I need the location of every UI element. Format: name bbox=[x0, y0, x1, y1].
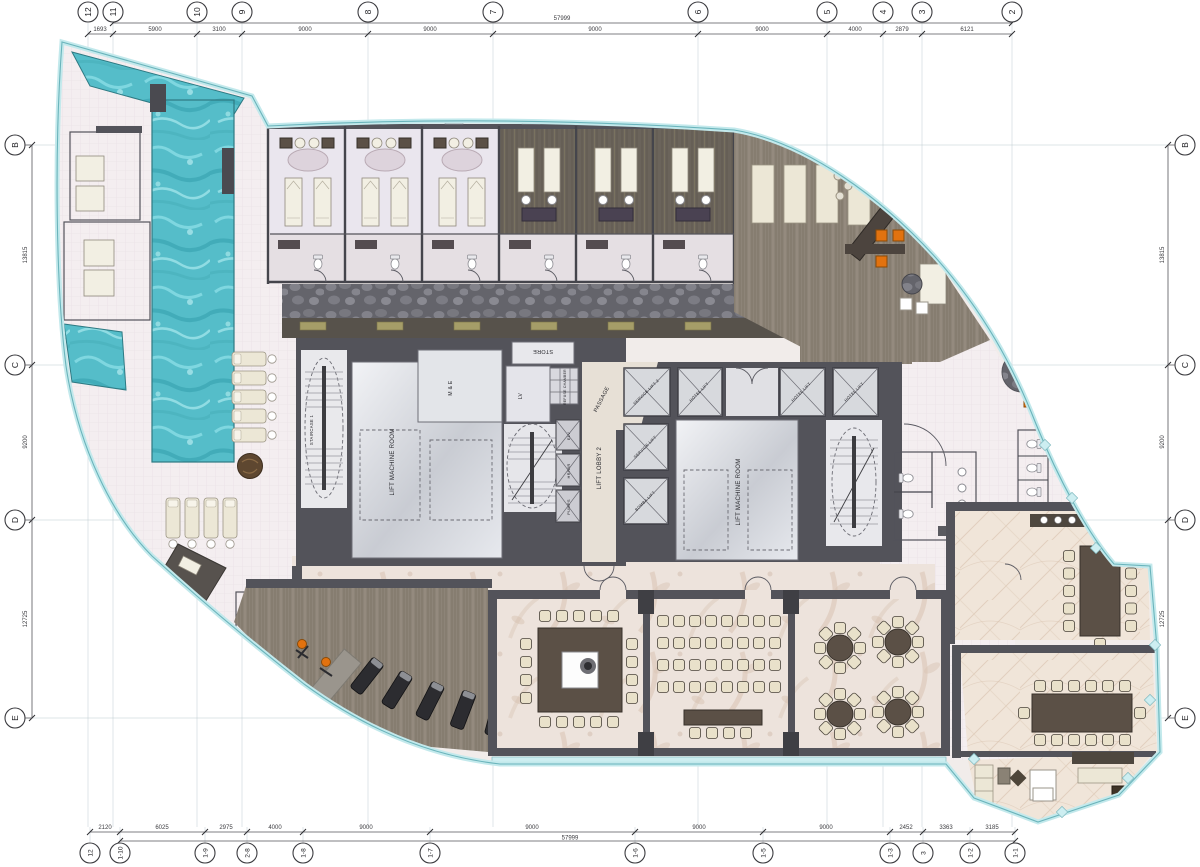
grid-bubble: B bbox=[10, 142, 20, 148]
label-lift-machine-room-1: LIFT MACHINE ROOM bbox=[390, 429, 396, 496]
dim-right: 13815 bbox=[1160, 246, 1166, 263]
dim-top: 4000 bbox=[848, 27, 862, 33]
dim-bottom: 2120 bbox=[98, 825, 112, 831]
floor-plan-canvas: STAIRCASE 1 LIFT MACHINE ROOM M & E STOR… bbox=[0, 0, 1200, 867]
pouf bbox=[1112, 803, 1125, 816]
grid-bubble: 9 bbox=[237, 9, 247, 14]
dim-top: 9000 bbox=[588, 27, 602, 33]
grid-bubble: B bbox=[1180, 142, 1190, 148]
grid-bubble: 7 bbox=[488, 9, 498, 14]
floor-plan-drawing: STAIRCASE 1 LIFT MACHINE ROOM M & E STOR… bbox=[0, 0, 1200, 867]
daybed bbox=[920, 264, 946, 304]
bench-band bbox=[282, 318, 804, 338]
grid-bubble: 10 bbox=[192, 7, 202, 17]
label-m-and-e: M & E bbox=[448, 380, 454, 395]
grid-bubble: 3 bbox=[917, 9, 927, 14]
label-lift-lobby-2: LIFT LOBBY 2 bbox=[597, 446, 603, 489]
dim-top: 6121 bbox=[960, 27, 974, 33]
planter-tree bbox=[238, 454, 263, 479]
grid-bubble: 8 bbox=[363, 9, 373, 14]
dim-right: 12725 bbox=[1160, 610, 1166, 627]
label-store: STORE bbox=[533, 348, 553, 354]
grid-bubble: E bbox=[1180, 715, 1190, 721]
grid-bubble: 1-7 bbox=[427, 848, 434, 858]
dim-bottom-overall: 57999 bbox=[562, 836, 579, 842]
grid-bubble: 4 bbox=[878, 9, 888, 14]
grid-bubble: 12 bbox=[87, 849, 94, 857]
dim-top: 2879 bbox=[895, 27, 909, 33]
dim-left: 12725 bbox=[23, 610, 29, 627]
grid-bubble: 2 bbox=[1007, 9, 1017, 14]
dim-top-overall: 57999 bbox=[554, 16, 571, 22]
dimensions-left: 13815 9200 12725 bbox=[23, 142, 35, 721]
grid-bubble: 3 bbox=[920, 851, 927, 855]
settee bbox=[1078, 768, 1122, 783]
orange-chair bbox=[893, 230, 904, 241]
dim-bottom: 9000 bbox=[692, 825, 706, 831]
lift-machine-room-1 bbox=[352, 350, 502, 558]
label-staircase-1: STAIRCASE 1 bbox=[309, 415, 314, 446]
label-hr-wr: HR/WR bbox=[566, 463, 571, 478]
grid-bubble: C bbox=[1180, 362, 1190, 368]
dim-bottom: 9000 bbox=[819, 825, 833, 831]
orange-chair bbox=[876, 230, 887, 241]
dimensions-right: 13815 9200 12725 bbox=[1160, 142, 1171, 721]
label-refuse-chamber: REFUSE CHAMBER bbox=[563, 369, 567, 405]
dim-top: 9000 bbox=[423, 27, 437, 33]
label-lift-machine-room-2: LIFT MACHINE ROOM bbox=[736, 459, 742, 526]
console bbox=[1072, 752, 1134, 764]
dim-left: 9200 bbox=[23, 435, 29, 449]
grid-bubble: D bbox=[10, 517, 20, 523]
relaxation-lounge bbox=[734, 130, 990, 362]
building: STAIRCASE 1 LIFT MACHINE ROOM M & E STOR… bbox=[0, 0, 1200, 867]
staircase-central bbox=[504, 424, 562, 512]
dim-bottom: 9000 bbox=[525, 825, 539, 831]
dimensions-bottom: 57999 2120 6025 2975 4000 9000 9000 9000… bbox=[87, 825, 1018, 844]
dim-top: 3100 bbox=[212, 27, 226, 33]
dim-bottom: 6025 bbox=[155, 825, 169, 831]
staircase-2 bbox=[826, 420, 882, 546]
spin-bike bbox=[322, 658, 331, 667]
grid-bubbles-left: B C D E bbox=[5, 135, 32, 728]
grid-bubbles-right: B C D E bbox=[1168, 135, 1195, 728]
grid-bubble: 1-9 bbox=[202, 848, 209, 858]
grid-bubble: 11 bbox=[108, 7, 118, 16]
grid-bubble: 1-8 bbox=[300, 848, 307, 858]
spa-treatment-rooms bbox=[268, 114, 734, 284]
dim-top: 5900 bbox=[148, 27, 162, 33]
staircase-1 bbox=[301, 350, 347, 508]
grid-bubble: C bbox=[10, 362, 20, 368]
grid-bubbles-bottom: 12 1-10 1-9 2-8 1-8 1-7 1-6 1-5 1-3 3 1-… bbox=[80, 843, 1025, 863]
dim-left: 13815 bbox=[23, 246, 29, 263]
orange-chair bbox=[876, 256, 887, 267]
grid-bubble: 6 bbox=[693, 9, 703, 14]
dim-right: 9200 bbox=[1160, 435, 1166, 449]
label-lv: LV bbox=[518, 392, 524, 399]
label-pumps: PUMPS bbox=[566, 499, 571, 515]
dim-top: 1693 bbox=[93, 27, 107, 33]
label-elv: ELV bbox=[566, 432, 571, 440]
boardroom-east-2 bbox=[952, 645, 1158, 758]
spin-bike bbox=[298, 640, 307, 649]
dim-bottom: 2452 bbox=[899, 825, 913, 831]
dim-bottom: 3363 bbox=[939, 825, 953, 831]
stone-walkway bbox=[282, 284, 804, 318]
grid-bubbles-top: 12 11 10 9 8 7 6 5 4 3 2 bbox=[78, 2, 1022, 22]
grid-bubble: 1-2 bbox=[967, 848, 974, 858]
grid-bubble: E bbox=[10, 715, 20, 721]
lv-room bbox=[506, 366, 550, 422]
grid-bubble: 1-1 bbox=[1012, 848, 1019, 858]
function-rooms bbox=[488, 577, 950, 763]
dim-bottom: 3185 bbox=[985, 825, 999, 831]
grid-bubble: 1-3 bbox=[887, 848, 894, 858]
dim-top: 9000 bbox=[755, 27, 769, 33]
grid-bubble: 1-5 bbox=[760, 848, 767, 858]
grid-bubble: 12 bbox=[83, 7, 93, 17]
grid-bubble: 5 bbox=[822, 9, 832, 14]
grid-bubble: 2-8 bbox=[244, 848, 251, 858]
dim-bottom: 9000 bbox=[359, 825, 373, 831]
boardroom-east-1 bbox=[946, 502, 1150, 650]
dim-bottom: 4000 bbox=[268, 825, 282, 831]
grid-bubble: 1-6 bbox=[632, 848, 639, 858]
dim-bottom: 2975 bbox=[219, 825, 233, 831]
boardroom-square bbox=[521, 611, 638, 728]
dim-top: 9000 bbox=[298, 27, 312, 33]
grid-bubble: 1-10 bbox=[117, 846, 124, 860]
grid-bubble: D bbox=[1180, 517, 1190, 523]
